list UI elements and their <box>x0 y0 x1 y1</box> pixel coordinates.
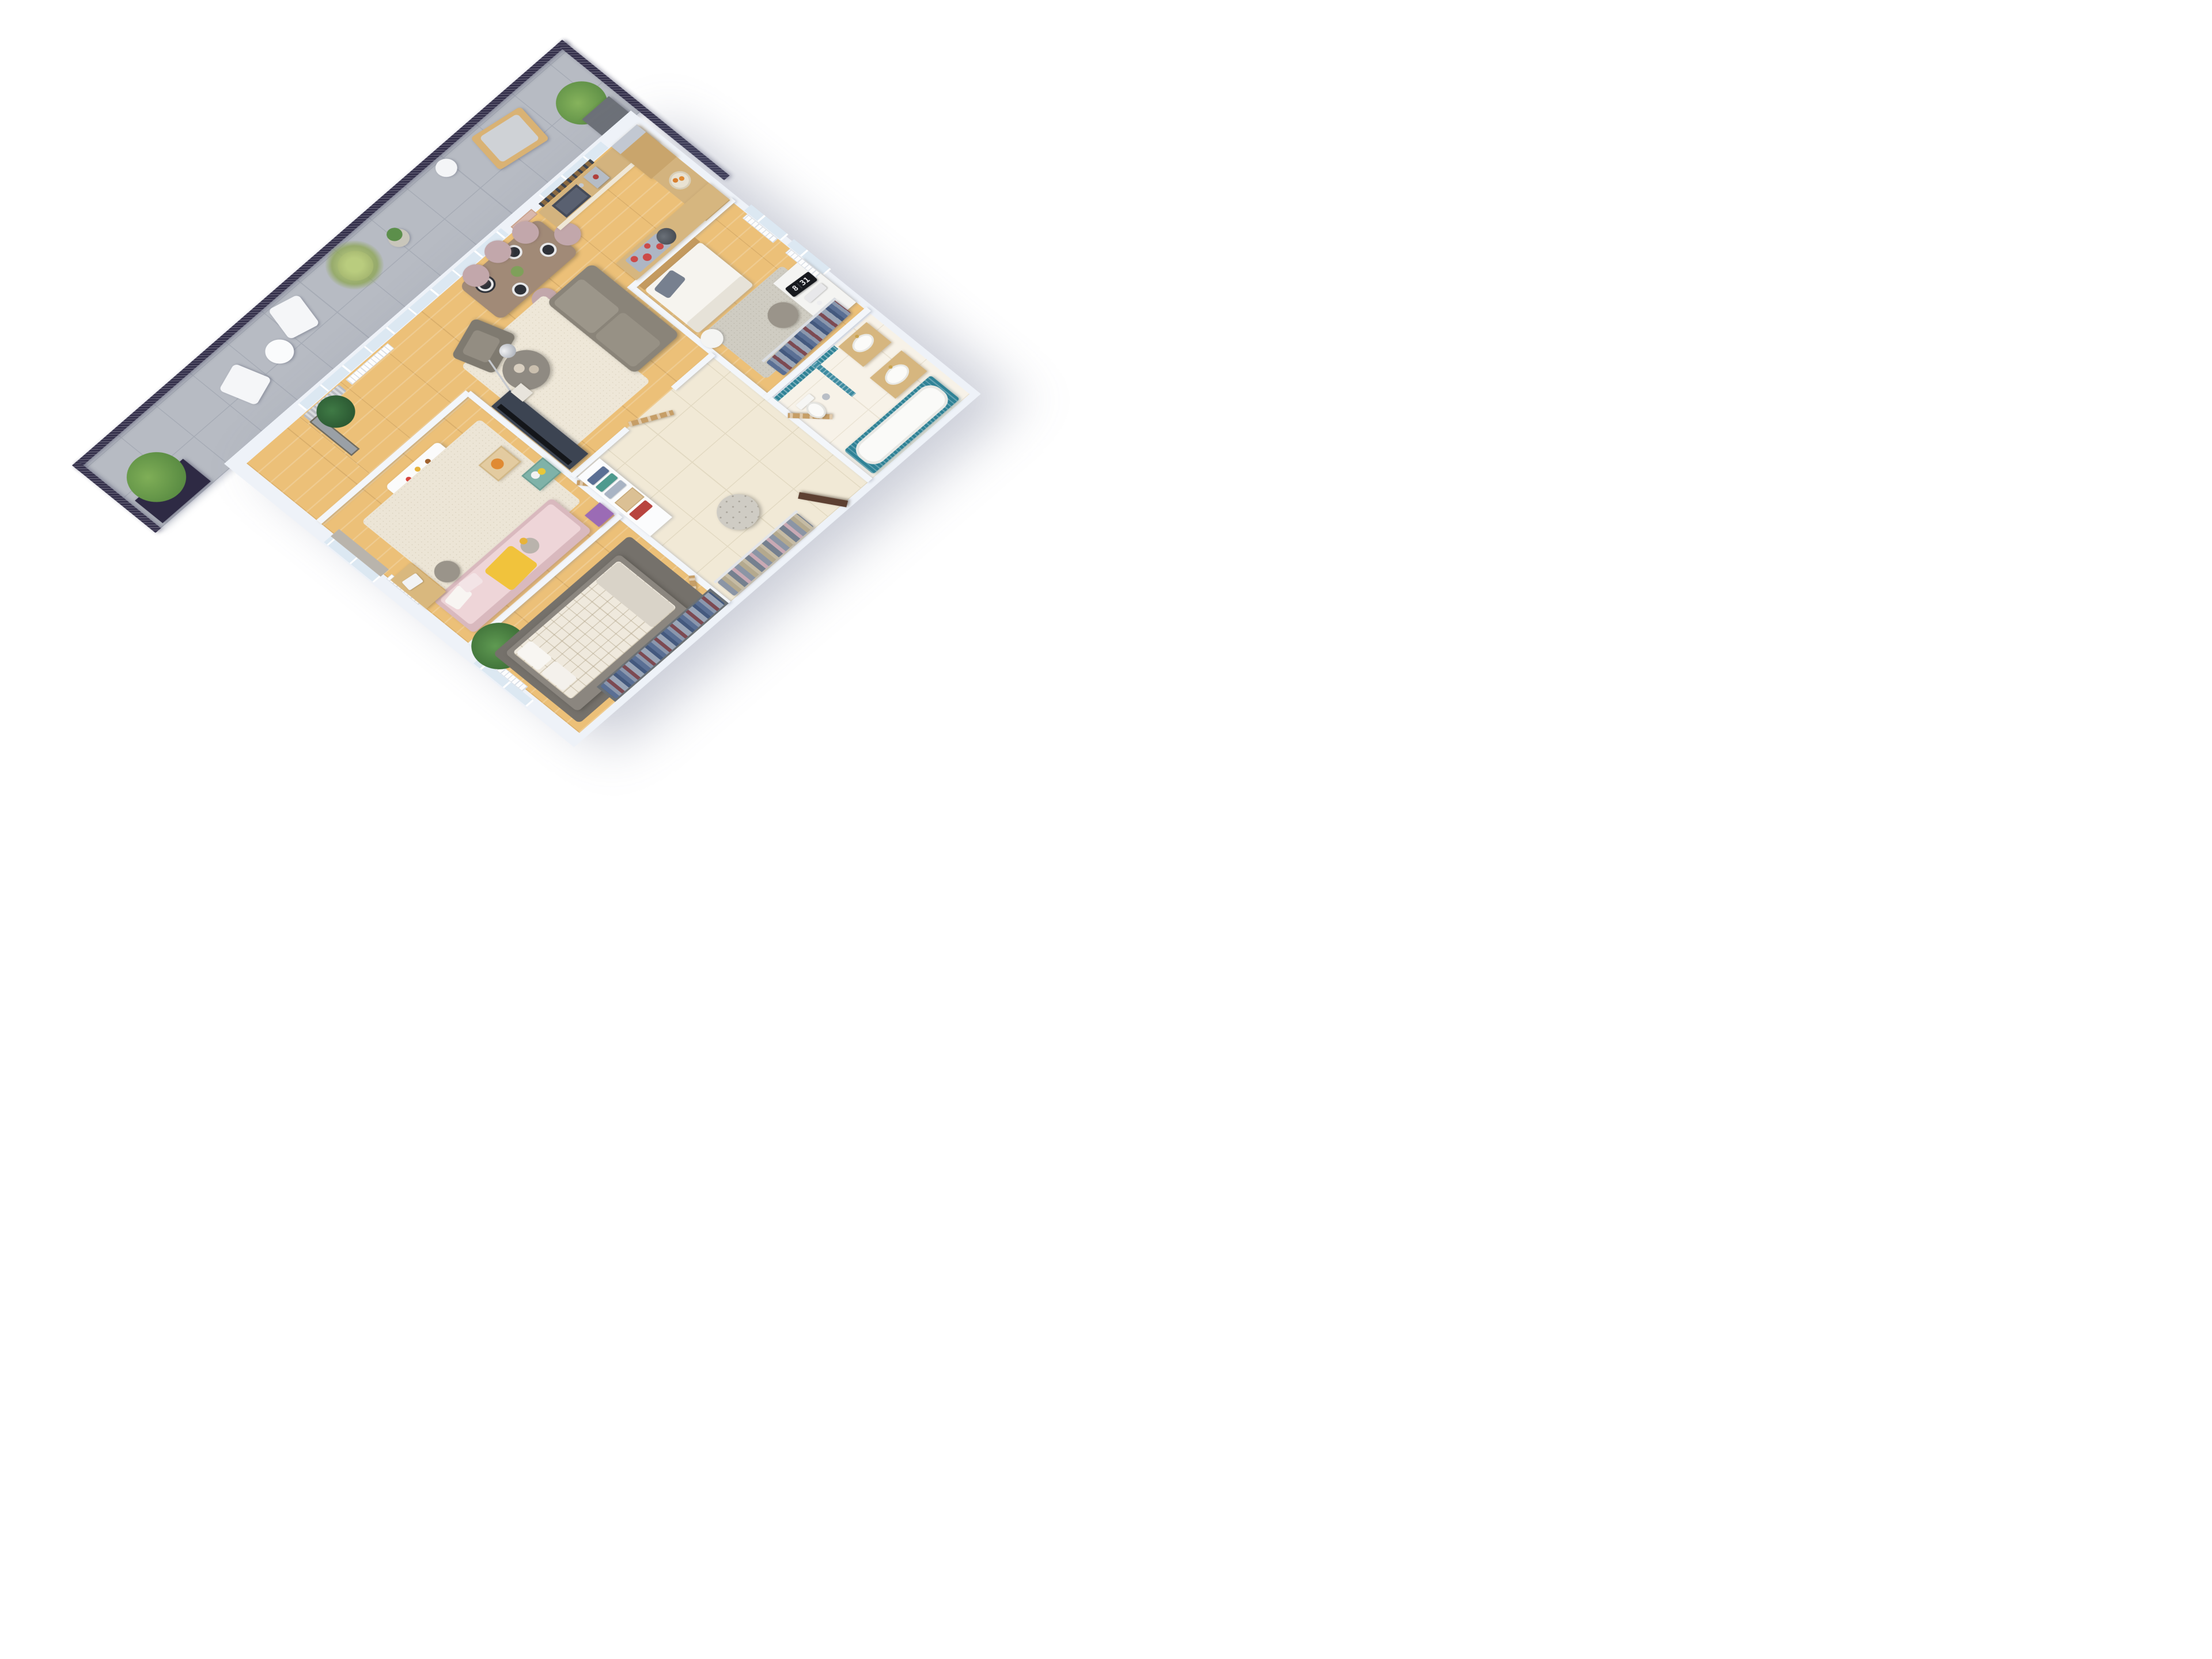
floor-plan-scene: 8 31 <box>46 0 1060 836</box>
render-canvas: 8 31 <box>0 0 2212 1659</box>
